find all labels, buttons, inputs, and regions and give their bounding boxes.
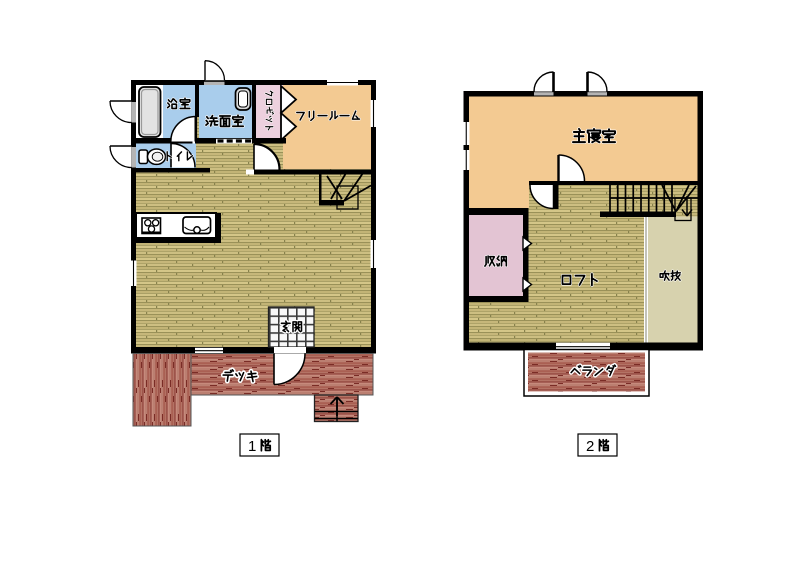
svg-text:1: 1	[248, 438, 256, 455]
svg-text:2: 2	[586, 438, 594, 455]
